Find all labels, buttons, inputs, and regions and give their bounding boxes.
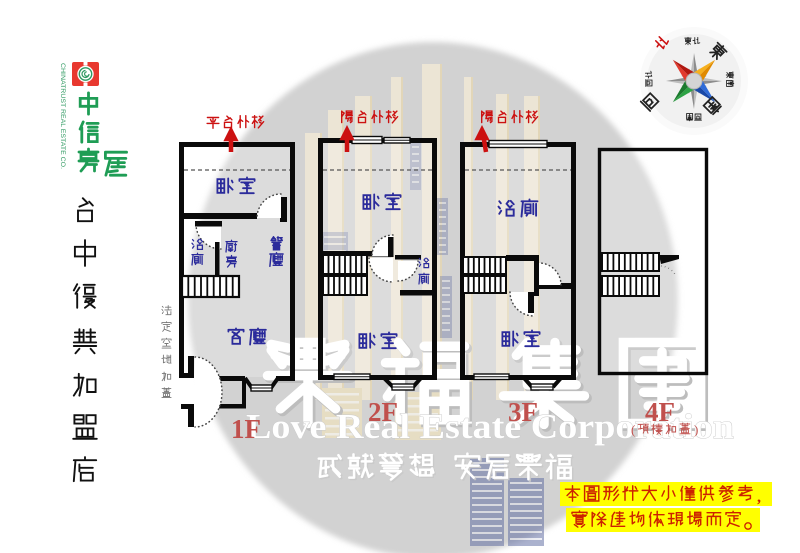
svg-text:,: , xyxy=(757,489,761,506)
svg-text:1F: 1F xyxy=(231,414,261,444)
svg-text:CHINATRUST REAL ESTATE CO.: CHINATRUST REAL ESTATE CO. xyxy=(59,63,66,169)
svg-text:4F: 4F xyxy=(645,397,675,427)
svg-text:): ) xyxy=(694,422,698,437)
svg-text:(: ( xyxy=(631,422,635,437)
svg-text:3F: 3F xyxy=(508,397,538,427)
svg-text:2F: 2F xyxy=(368,397,398,427)
